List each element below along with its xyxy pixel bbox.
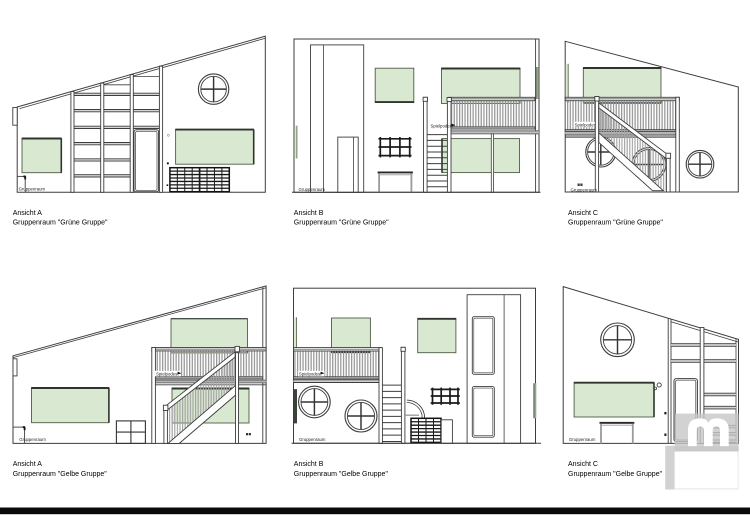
svg-text:Gruppenraum "Grüne Gruppe": Gruppenraum "Grüne Gruppe" xyxy=(294,220,389,227)
svg-text:Spielpodest: Spielpodest xyxy=(156,371,179,376)
svg-text:Ansicht A: Ansicht A xyxy=(13,461,43,468)
svg-text:Gruppenraum: Gruppenraum xyxy=(569,437,596,442)
svg-text:Gruppenraum "Grüne Gruppe": Gruppenraum "Grüne Gruppe" xyxy=(13,220,108,227)
svg-text:Spielpodest: Spielpodest xyxy=(299,371,322,376)
svg-text:Spielpodest: Spielpodest xyxy=(431,123,454,128)
svg-text:Gruppenraum "Gelbe Gruppe": Gruppenraum "Gelbe Gruppe" xyxy=(13,471,108,478)
svg-text:Spielpodest: Spielpodest xyxy=(575,122,598,127)
svg-text:Ansicht A: Ansicht A xyxy=(13,210,43,217)
svg-text:Gruppenraum "Grüne Gruppe": Gruppenraum "Grüne Gruppe" xyxy=(568,220,663,227)
svg-text:Gruppenraum: Gruppenraum xyxy=(571,187,598,192)
svg-text:Gruppenraum: Gruppenraum xyxy=(19,187,46,192)
svg-text:Gruppenraum "Gelbe Gruppe": Gruppenraum "Gelbe Gruppe" xyxy=(568,471,663,478)
svg-text:Gruppenraum: Gruppenraum xyxy=(19,437,46,442)
svg-text:Ansicht B: Ansicht B xyxy=(294,210,324,217)
svg-text:Gruppenraum "Gelbe Gruppe": Gruppenraum "Gelbe Gruppe" xyxy=(294,471,389,478)
svg-text:Ansicht C: Ansicht C xyxy=(568,210,598,217)
svg-text:Gruppenraum: Gruppenraum xyxy=(299,187,326,192)
svg-text:Gruppenraum: Gruppenraum xyxy=(299,437,326,442)
svg-text:Ansicht C: Ansicht C xyxy=(568,461,598,468)
svg-text:Ansicht B: Ansicht B xyxy=(294,461,324,468)
